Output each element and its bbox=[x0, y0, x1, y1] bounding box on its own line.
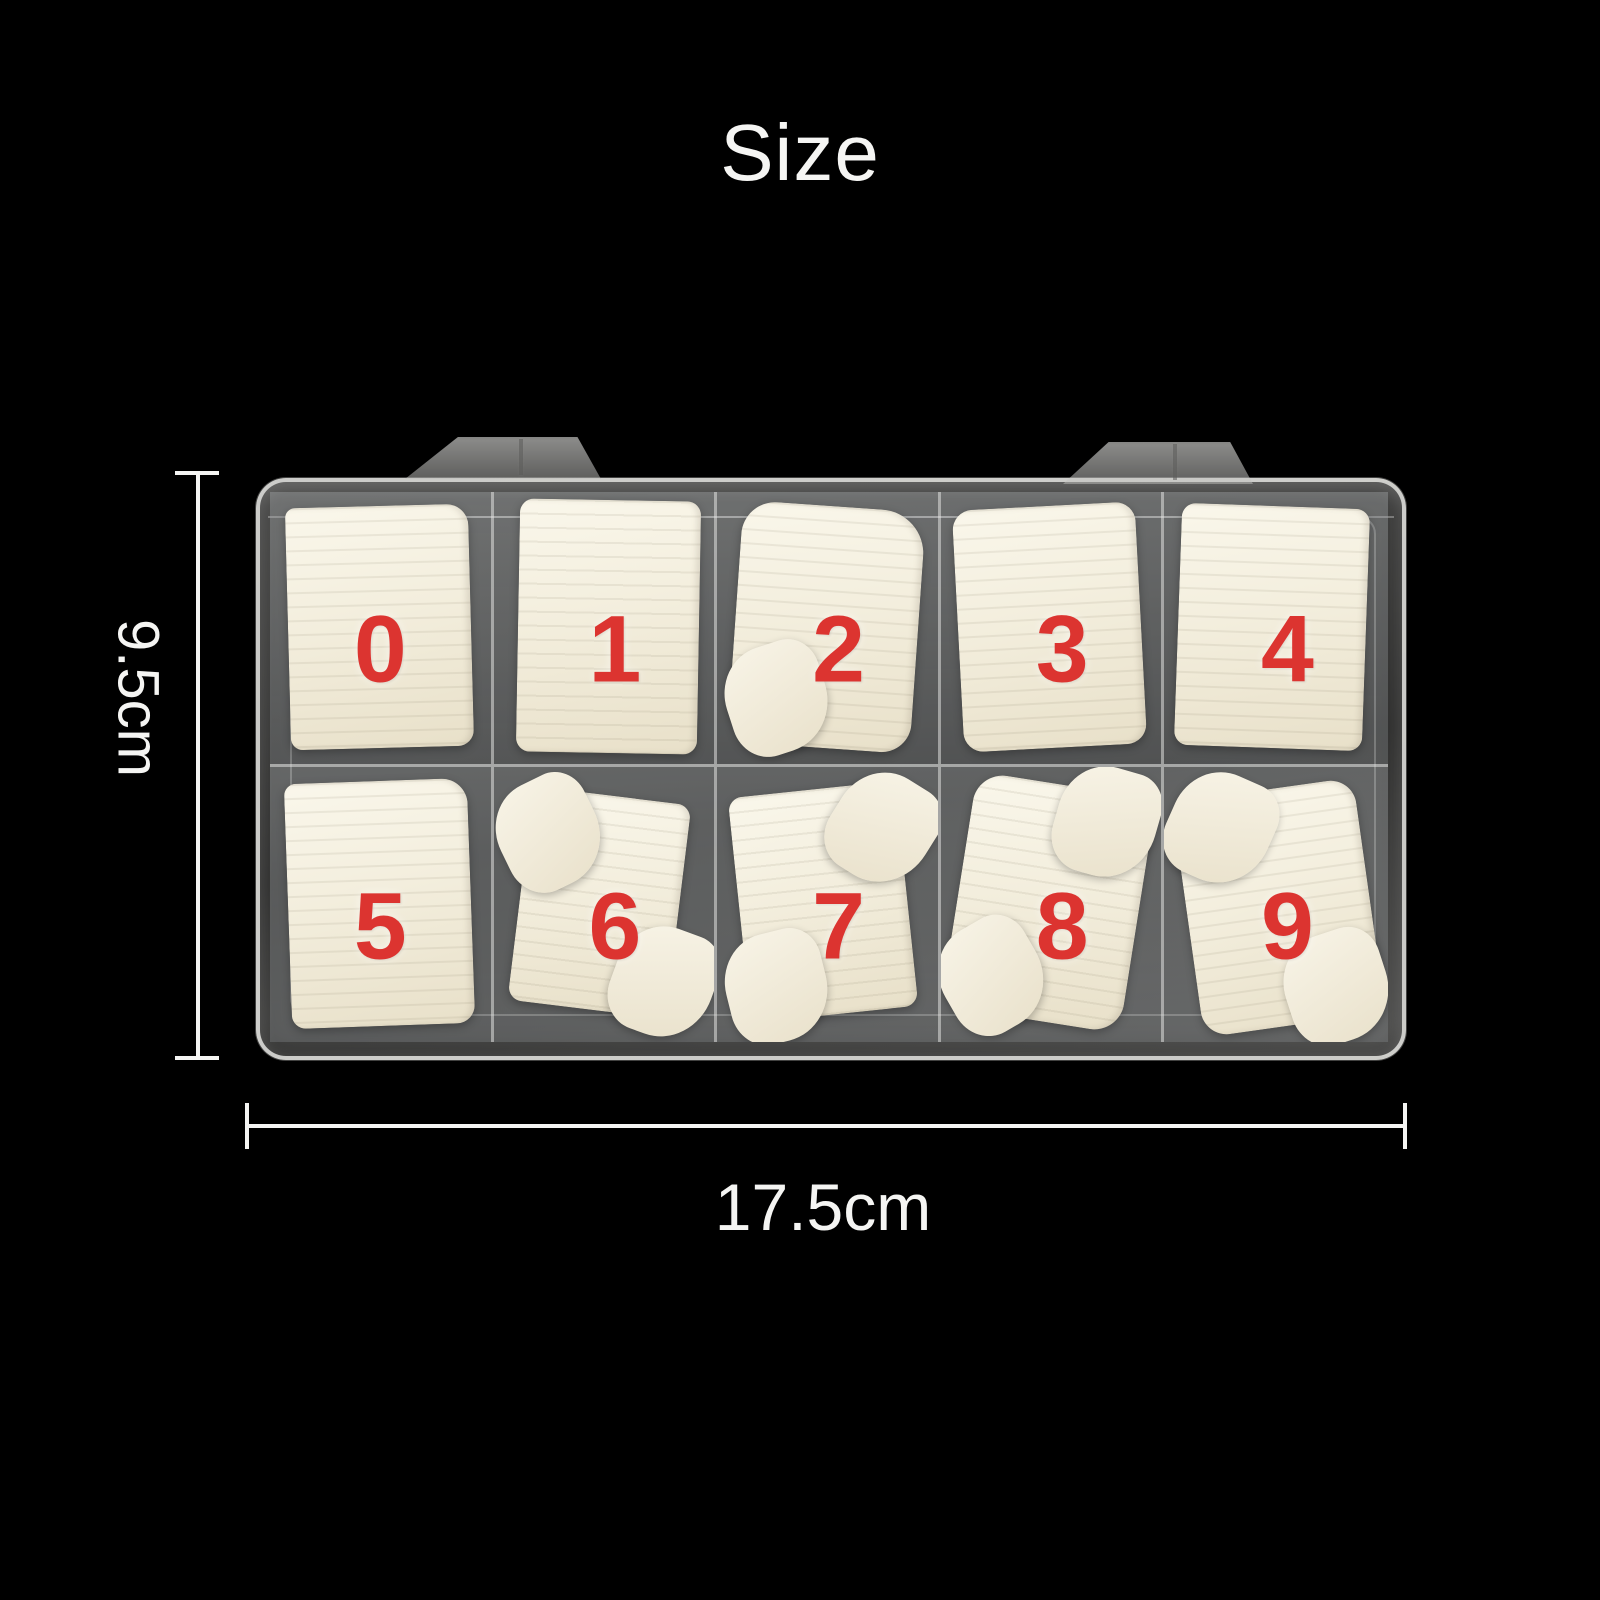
compartment-5: 5 bbox=[270, 767, 494, 1042]
compartment-grid: 0 1 2 3 4 5 6 7 8 9 bbox=[270, 492, 1388, 1042]
width-dimension-line bbox=[245, 1124, 1407, 1128]
latch-tab-right bbox=[1063, 442, 1253, 484]
latch-tab-left bbox=[405, 437, 601, 479]
compartment-3: 3 bbox=[941, 492, 1165, 767]
compartment-7: 7 bbox=[717, 767, 941, 1042]
size-title: Size bbox=[0, 105, 1600, 201]
compartment-8: 8 bbox=[941, 767, 1165, 1042]
compartment-number: 2 bbox=[812, 602, 865, 697]
compartment-number: 9 bbox=[1261, 879, 1314, 974]
compartment-9: 9 bbox=[1164, 767, 1388, 1042]
compartment-number: 5 bbox=[354, 879, 407, 974]
height-dimension-bottom-cap bbox=[175, 1056, 219, 1060]
latch-notch bbox=[519, 439, 523, 475]
height-dimension-top-cap bbox=[175, 471, 219, 475]
compartment-number: 3 bbox=[1036, 602, 1089, 697]
compartment-number: 0 bbox=[354, 602, 407, 697]
height-dimension-label: 9.5cm bbox=[105, 619, 172, 777]
compartment-number: 6 bbox=[588, 879, 641, 974]
compartment-0: 0 bbox=[270, 492, 494, 767]
compartment-2: 2 bbox=[717, 492, 941, 767]
compartment-1: 1 bbox=[494, 492, 718, 767]
width-dimension-right-cap bbox=[1403, 1103, 1407, 1149]
width-dimension-left-cap bbox=[245, 1103, 249, 1149]
compartment-number: 4 bbox=[1261, 602, 1314, 697]
compartment-6: 6 bbox=[494, 767, 718, 1042]
latch-notch bbox=[1173, 444, 1177, 480]
compartment-number: 7 bbox=[812, 879, 865, 974]
compartment-4: 4 bbox=[1164, 492, 1388, 767]
height-dimension-line bbox=[196, 471, 200, 1060]
compartment-number: 1 bbox=[588, 602, 641, 697]
width-dimension-label: 17.5cm bbox=[715, 1169, 931, 1245]
compartment-number: 8 bbox=[1036, 879, 1089, 974]
